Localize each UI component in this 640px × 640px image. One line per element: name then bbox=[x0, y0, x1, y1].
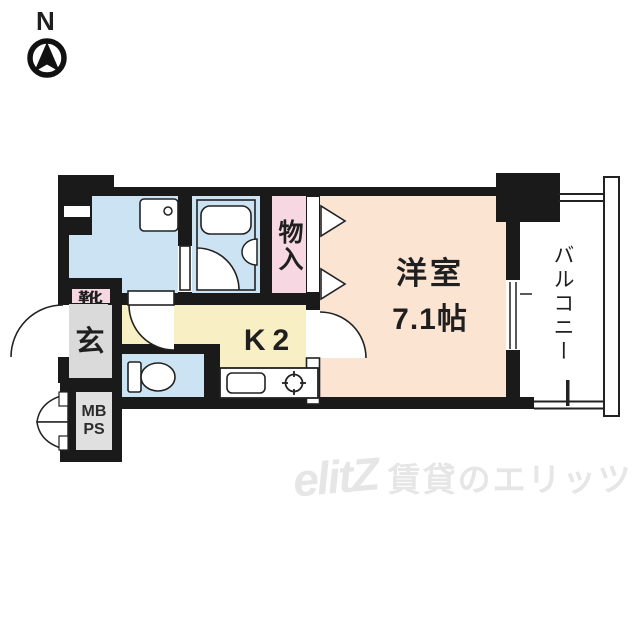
toilet-icon bbox=[128, 362, 175, 392]
floor-plan-image: N 靴 MB PS bbox=[0, 0, 640, 640]
western-room-size-label: 7.1帖 bbox=[330, 296, 530, 336]
closet-label: 物入 bbox=[274, 206, 304, 286]
compass-rose-icon bbox=[30, 41, 64, 75]
kitchen-label: K2 bbox=[218, 322, 322, 360]
washbasin-icon bbox=[140, 199, 178, 231]
bathroom-door-swing-icon bbox=[180, 246, 239, 290]
entrance-door-swing-icon bbox=[11, 305, 63, 357]
balcony-label: バルコニー bbox=[547, 213, 577, 395]
compass-north-label: N bbox=[36, 6, 55, 37]
entrance-label: 玄 bbox=[68, 304, 112, 374]
western-room-label: 洋室 bbox=[330, 248, 530, 292]
kitchen-sink-icon bbox=[227, 373, 265, 393]
washroom-door-swing-icon bbox=[128, 291, 174, 350]
meter-box-doors-icon bbox=[37, 392, 68, 450]
kitchen-counter bbox=[220, 368, 318, 398]
balcony-railing bbox=[604, 177, 619, 416]
